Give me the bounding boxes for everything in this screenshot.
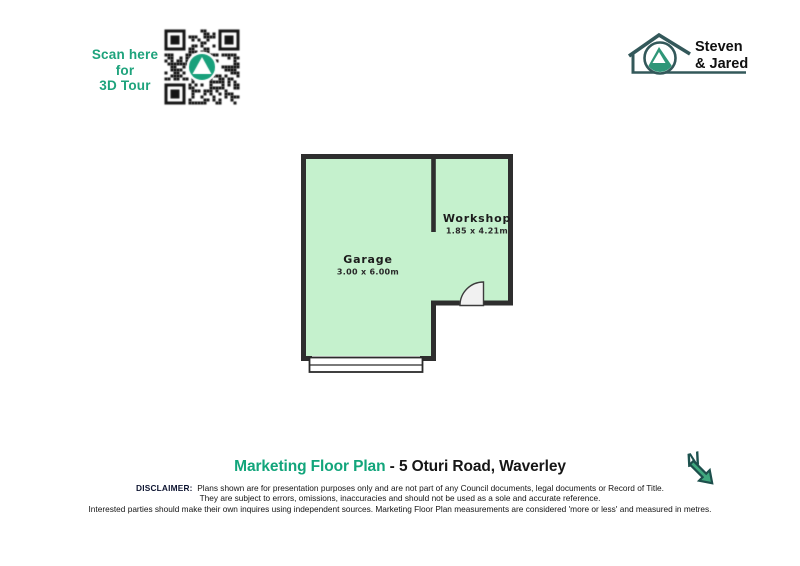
room-dims-garage: 3.00 x 6.00m	[337, 268, 399, 277]
qr-code-icon	[163, 28, 241, 106]
brand-name-line2: & Jared	[695, 56, 748, 72]
brand-logo: Steven & Jared	[624, 28, 750, 80]
disclaimer: DISCLAIMER: Plans shown are for presenta…	[40, 483, 760, 514]
brand-name-line1: Steven	[695, 39, 743, 55]
page-title-highlight: Marketing Floor Plan	[234, 458, 385, 475]
disclaimer-label: DISCLAIMER:	[136, 483, 193, 493]
north-arrow-icon: N	[672, 443, 727, 498]
disclaimer-line-2: They are subject to errors, omissions, i…	[40, 493, 760, 503]
building-outline	[304, 157, 511, 359]
floor-plan: Garage 3.00 x 6.00m Workshop 1.85 x 4.21…	[293, 146, 521, 382]
disclaimer-line-3: Interested parties should make their own…	[40, 504, 760, 514]
disclaimer-line-1: DISCLAIMER: Plans shown are for presenta…	[40, 483, 760, 493]
room-label-workshop: Workshop	[443, 212, 511, 225]
room-label-garage: Garage	[343, 253, 392, 266]
floor-plan-page: Scan here for 3D Tour Steven & Jared	[0, 0, 800, 566]
page-title-address: - 5 Oturi Road, Waverley	[390, 458, 566, 475]
room-dims-workshop: 1.85 x 4.21m	[446, 227, 508, 236]
